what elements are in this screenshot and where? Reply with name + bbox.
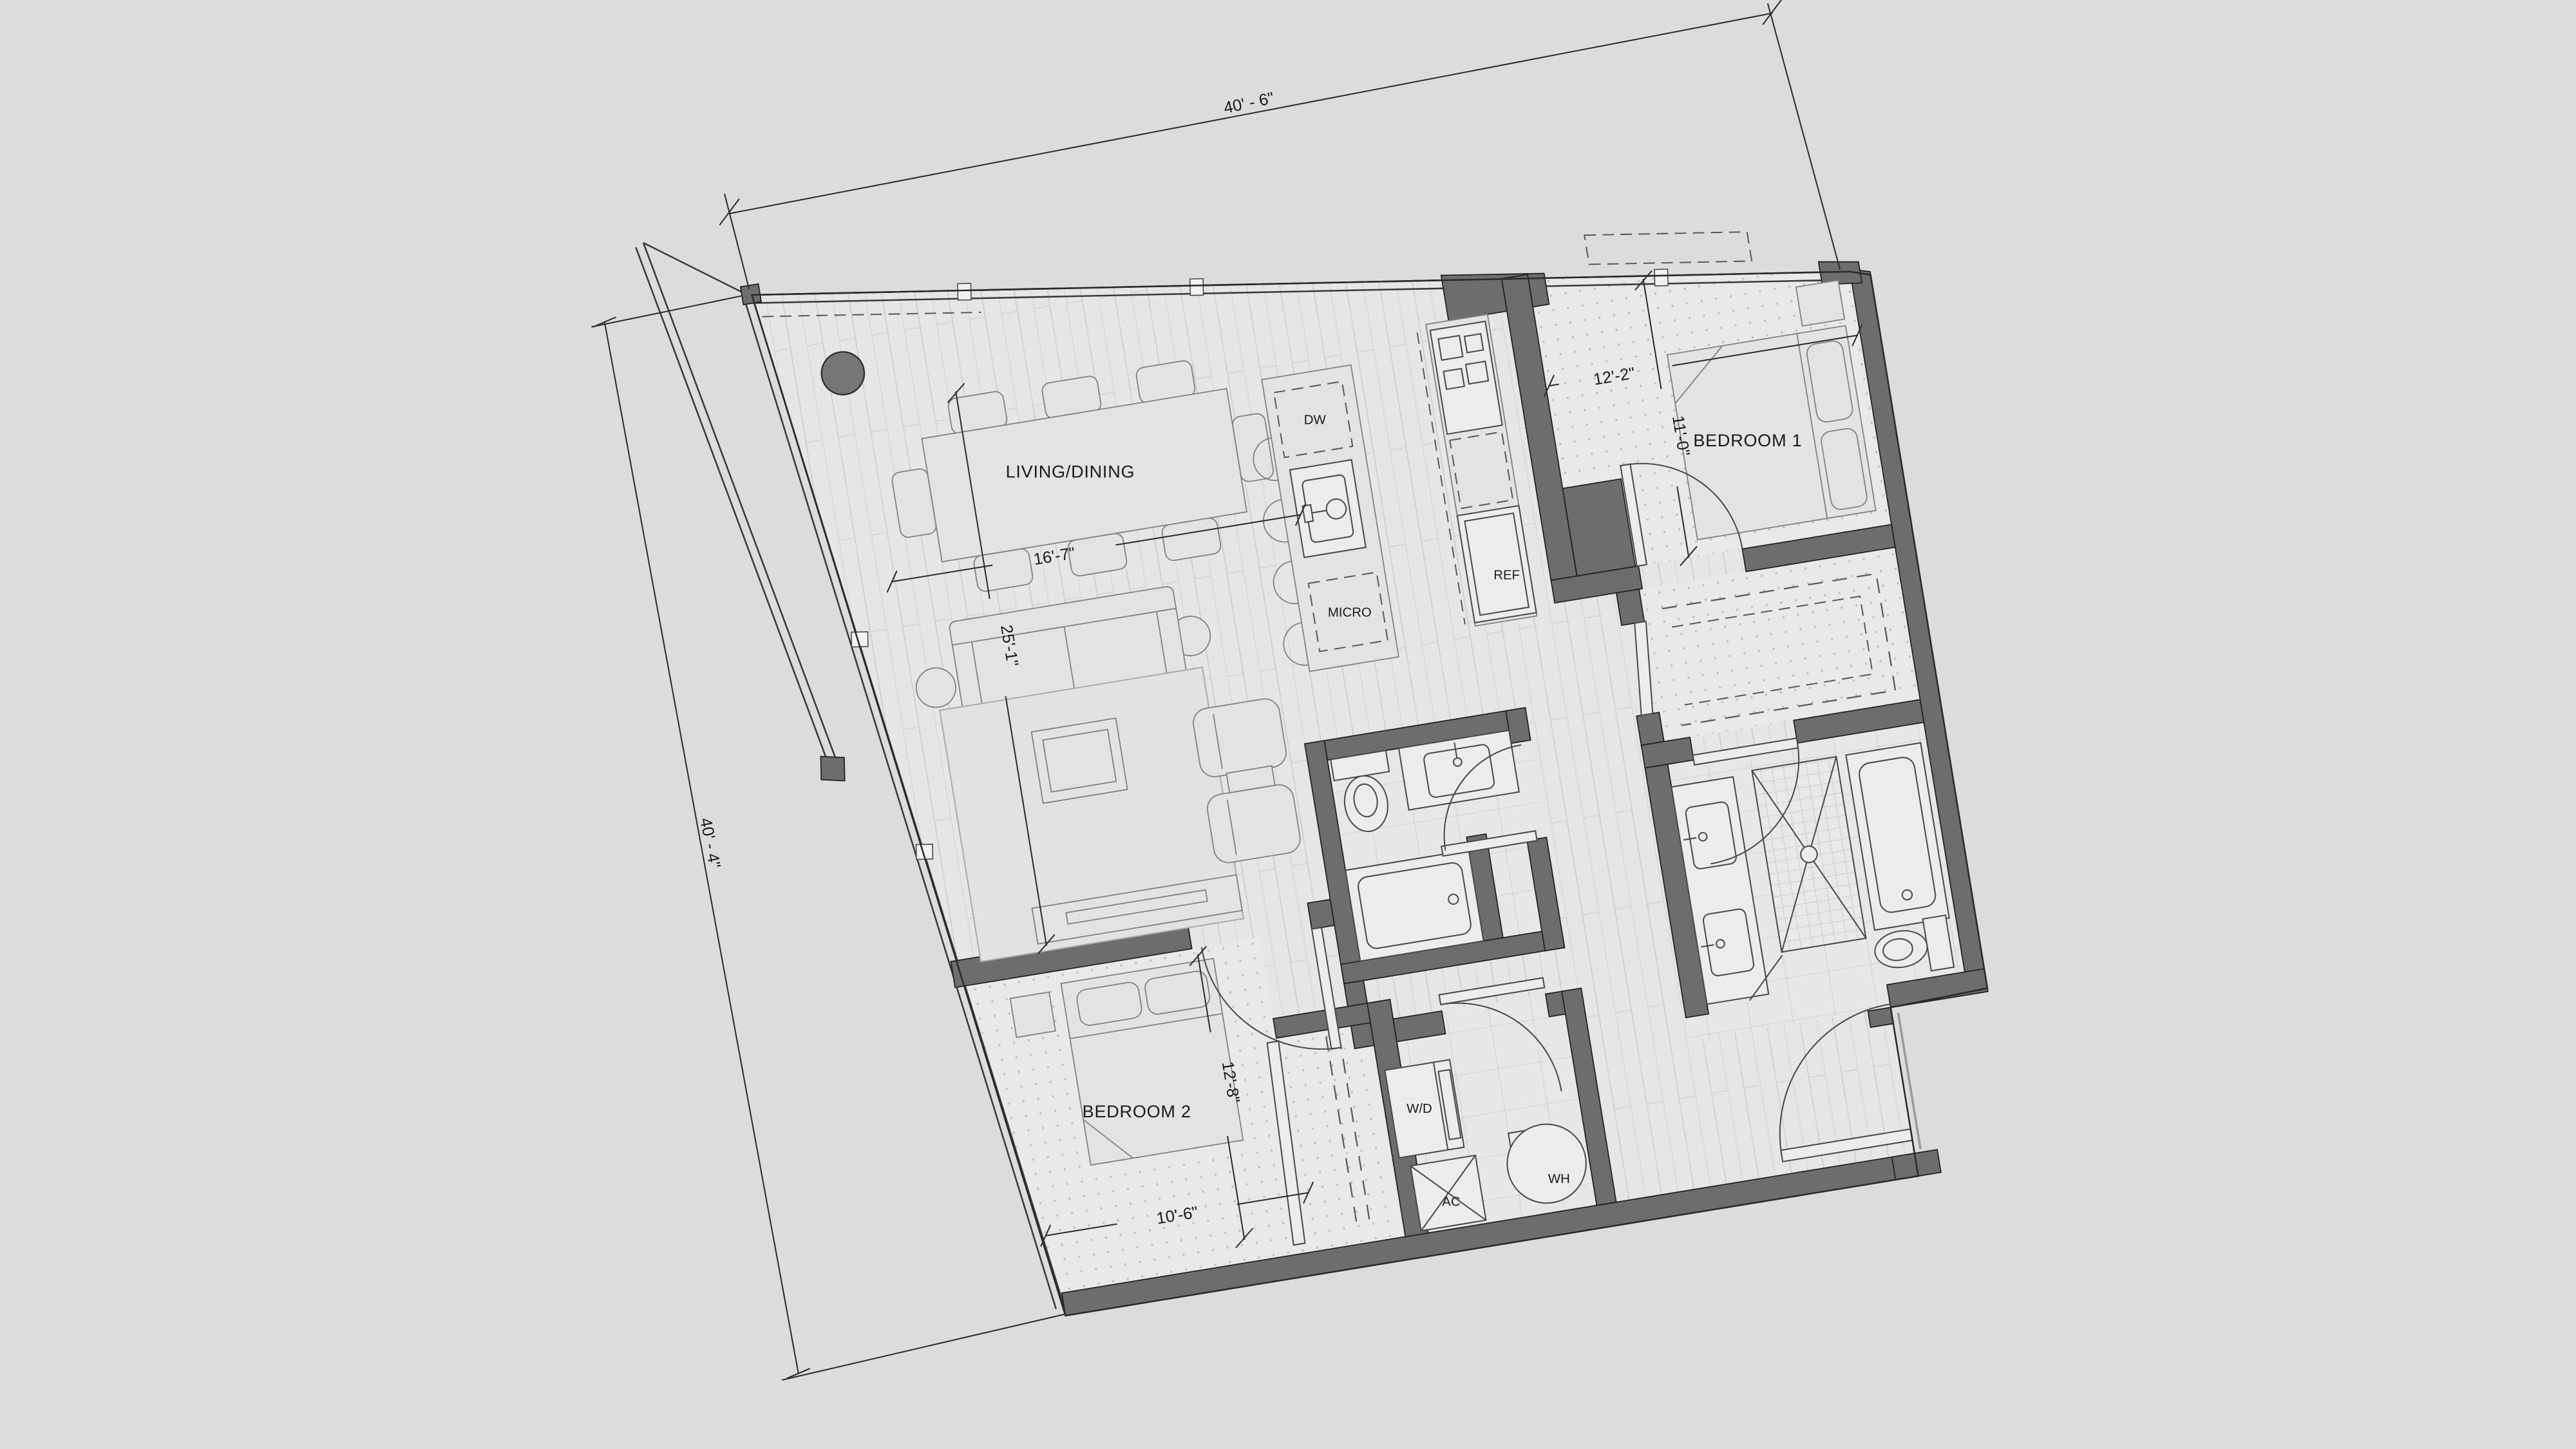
floor-plan-page: 12'-2" 11'-0" 16'-7" 25'-1" 12'-8" 10'-6… xyxy=(0,0,2576,1449)
bathtub1 xyxy=(1345,850,1483,961)
appliance-label-dw: DW xyxy=(1304,413,1327,428)
nightstand xyxy=(1010,992,1056,1037)
room-label-bedroom2: BEDROOM 2 xyxy=(1083,1102,1191,1121)
coffee-table xyxy=(1032,718,1128,803)
room-label-living-dining: LIVING/DINING xyxy=(1006,462,1135,481)
appliance-label-wd: W/D xyxy=(1406,1102,1432,1116)
appliance-label-ref: REF xyxy=(1493,568,1520,582)
floor-plan-svg: 12'-2" 11'-0" 16'-7" 25'-1" 12'-8" 10'-6… xyxy=(0,0,2576,1449)
sink2b xyxy=(1702,908,1754,976)
unit-plan: 12'-2" 11'-0" 16'-7" 25'-1" 12'-8" 10'-6… xyxy=(635,48,2015,1356)
room-label-bedroom1: BEDROOM 1 xyxy=(1693,431,1802,450)
dim-overall-left: 40' - 4" xyxy=(696,817,724,870)
nightstand xyxy=(1796,280,1844,326)
appliance-label-wh: WH xyxy=(1548,1172,1570,1186)
appliance-label-ac: AC xyxy=(1442,1195,1460,1209)
appliance-label-micro: MICRO xyxy=(1328,605,1372,620)
